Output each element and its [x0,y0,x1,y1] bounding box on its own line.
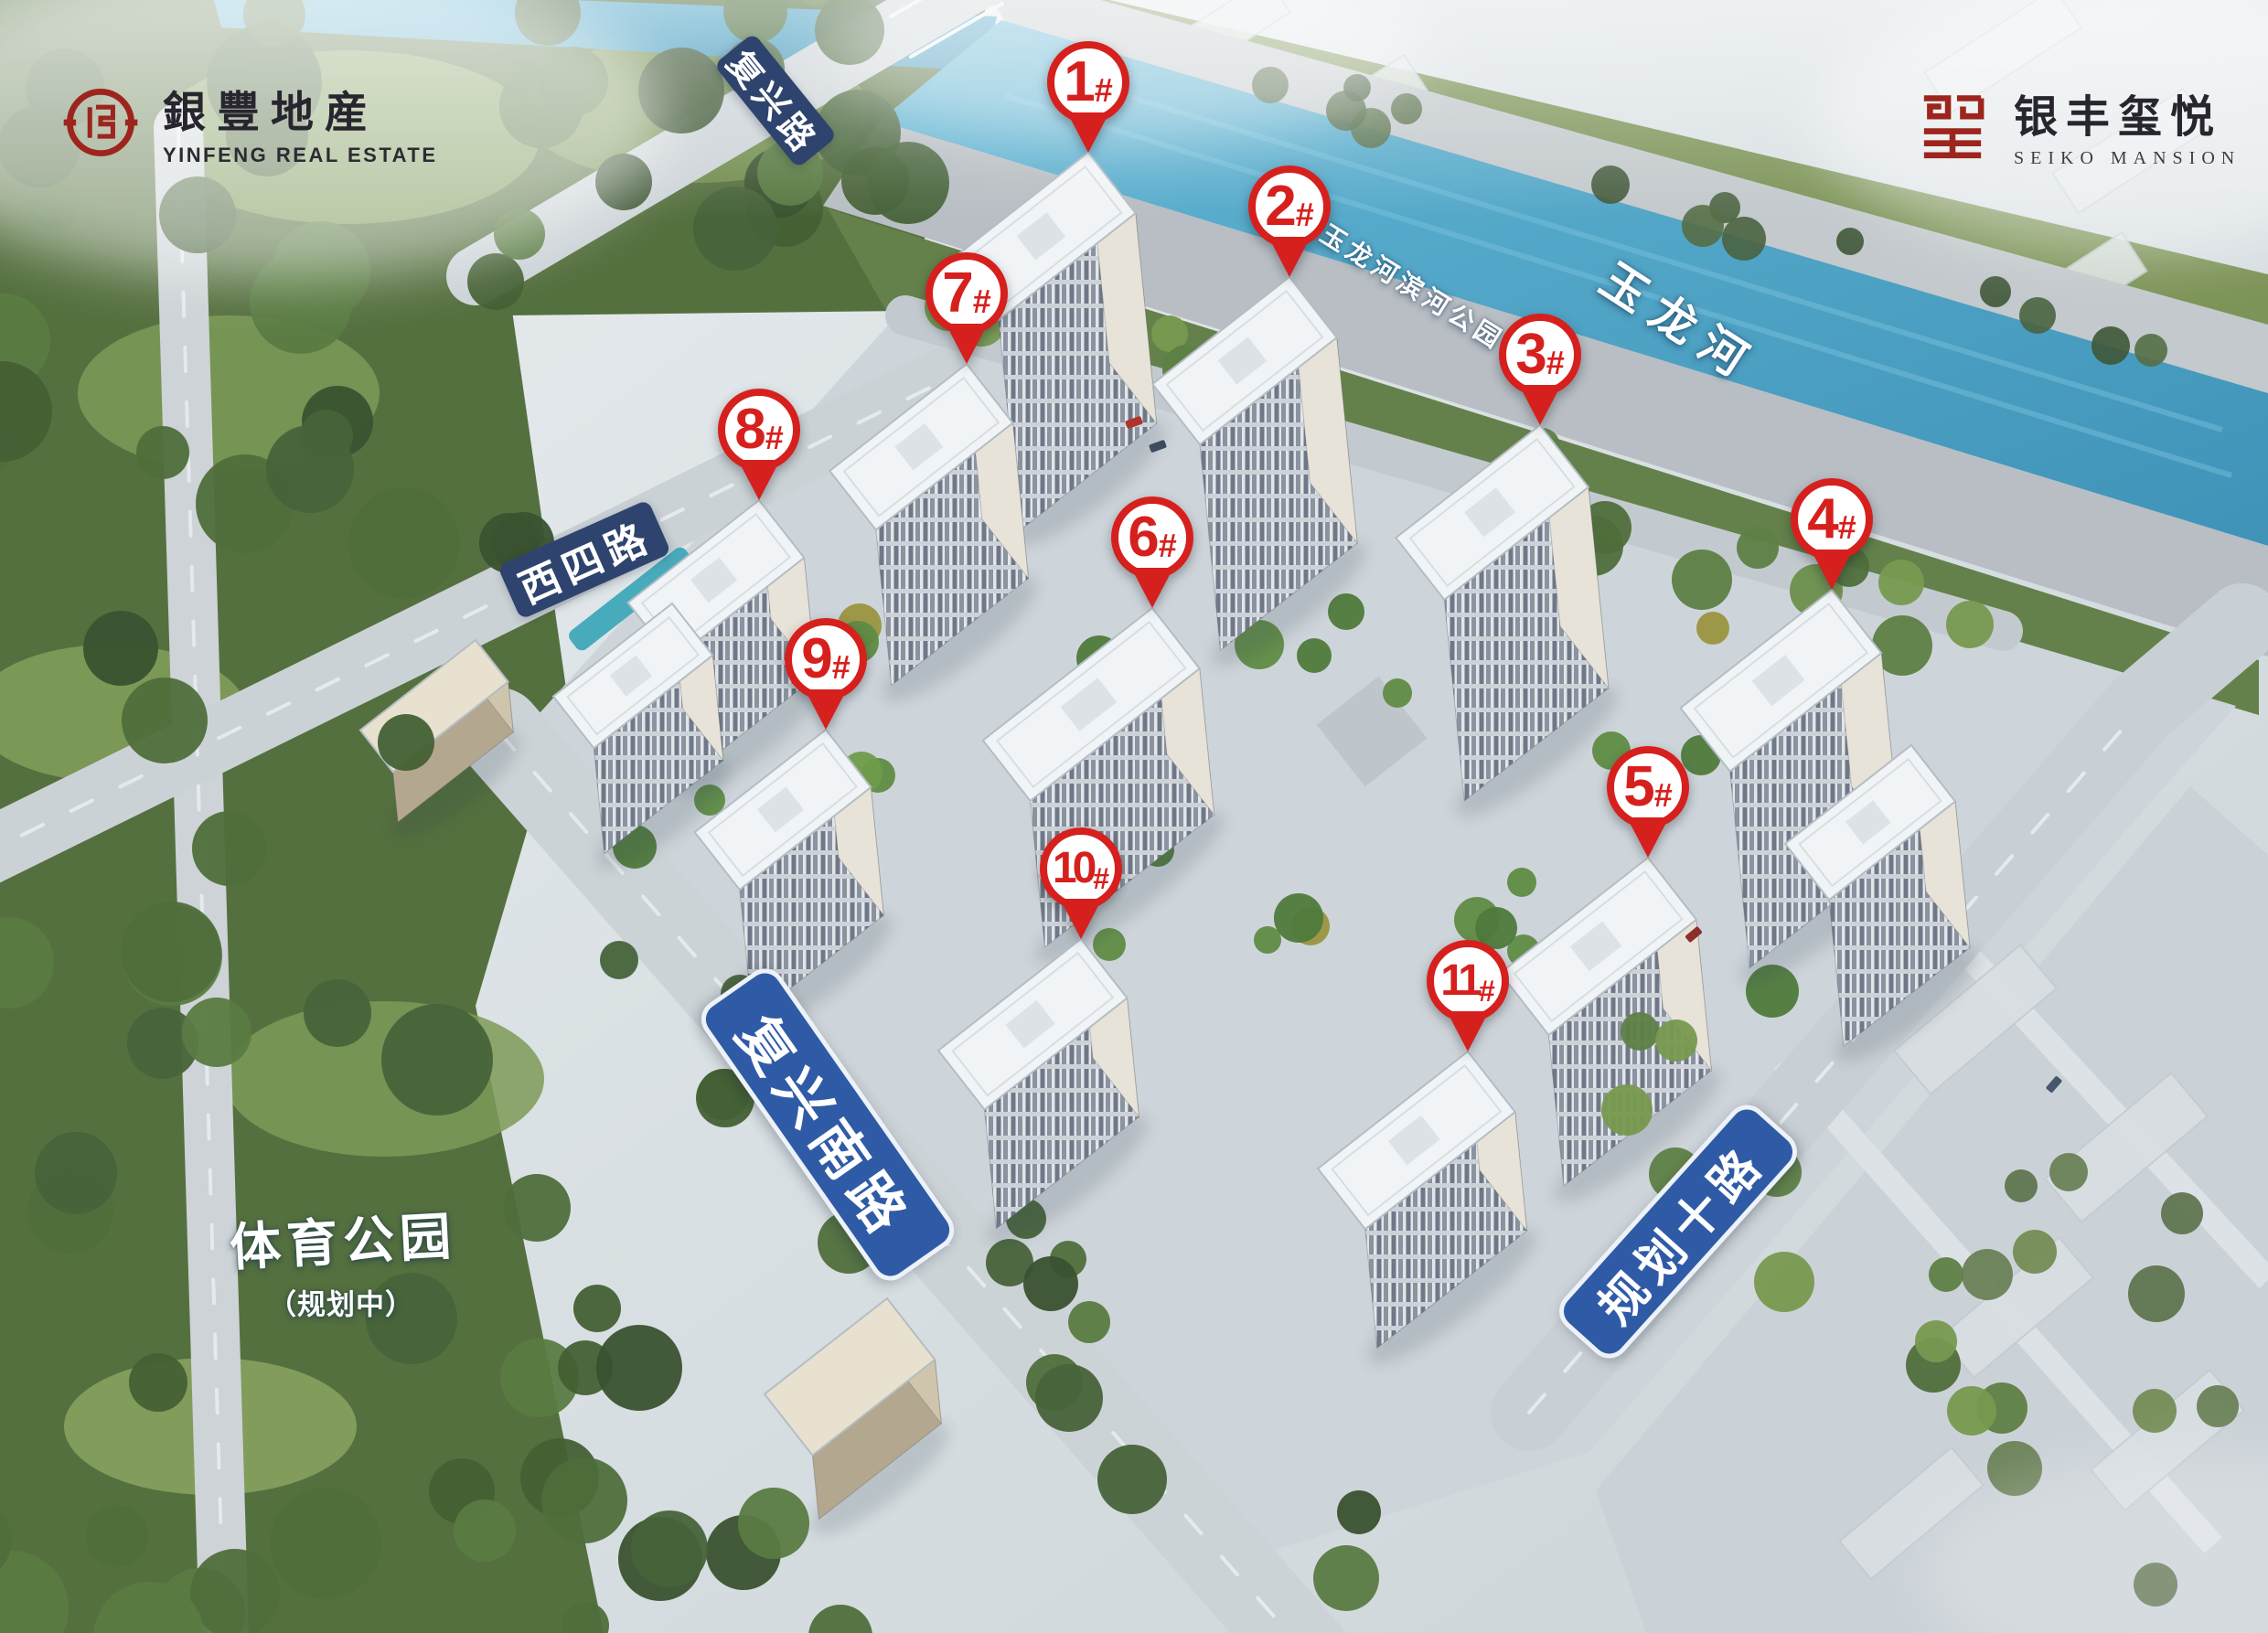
marker-circle: 4# [1791,478,1873,560]
marker-circle: 9# [785,618,867,700]
marker-tail [946,324,988,364]
building-marker-10[interactable]: 10# [1040,827,1122,939]
marker-tail [805,689,847,730]
building-marker-2[interactable]: 2# [1248,165,1331,277]
building-marker-4[interactable]: 4# [1791,478,1873,590]
building-marker-9[interactable]: 9# [785,618,867,730]
marker-tail [738,460,780,500]
marker-tail [1519,385,1561,425]
building-marker-8[interactable]: 8# [718,389,800,500]
building-marker-3[interactable]: 3# [1499,314,1581,425]
marker-circle: 10# [1040,827,1122,910]
marker-circle: 3# [1499,314,1581,396]
marker-circle: 5# [1607,746,1689,828]
building-marker-6[interactable]: 6# [1111,496,1193,608]
building-marker-7[interactable]: 7# [925,252,1008,364]
master-plan-rendering: 銀豐地産 YINFENG REAL ESTATE 银丰玺悦 SEIKO MANS… [0,0,2268,1633]
developer-name-en: YINFENG REAL ESTATE [163,144,438,167]
xi-seal-icon [1915,88,1990,163]
marker-tail [1447,1011,1489,1051]
marker-circle: 11# [1427,940,1509,1022]
building-marker-5[interactable]: 5# [1607,746,1689,858]
marker-circle: 8# [718,389,800,471]
marker-tail [1627,817,1669,858]
developer-logo: 銀豐地産 YINFENG REAL ESTATE [62,77,438,167]
sports-park-subtitle: （规划中） [268,1282,414,1323]
project-name-en: SEIKO MANSION [2014,148,2241,169]
marker-circle: 1# [1047,41,1129,123]
developer-name-cn: 銀豐地産 [163,77,438,140]
marker-circle: 6# [1111,496,1193,579]
marker-tail [1268,237,1311,277]
marker-circle: 7# [925,252,1008,335]
marker-tail [1067,112,1109,153]
developer-logo-text: 銀豐地産 YINFENG REAL ESTATE [163,77,438,167]
building-marker-1[interactable]: 1# [1047,41,1129,153]
sports-park-title: 体育公园 [228,1195,458,1281]
project-logo: 银丰玺悦 SEIKO MANSION [1915,80,2241,169]
yinfeng-seal-icon [62,84,139,161]
building-marker-11[interactable]: 11# [1427,940,1509,1051]
aerial-scene-illustration [0,0,2268,1633]
project-logo-text: 银丰玺悦 SEIKO MANSION [2014,80,2241,169]
marker-tail [1131,568,1173,608]
marker-tail [1811,550,1853,590]
marker-circle: 2# [1248,165,1331,248]
project-name-cn: 银丰玺悦 [2014,80,2241,144]
marker-tail [1060,899,1102,939]
